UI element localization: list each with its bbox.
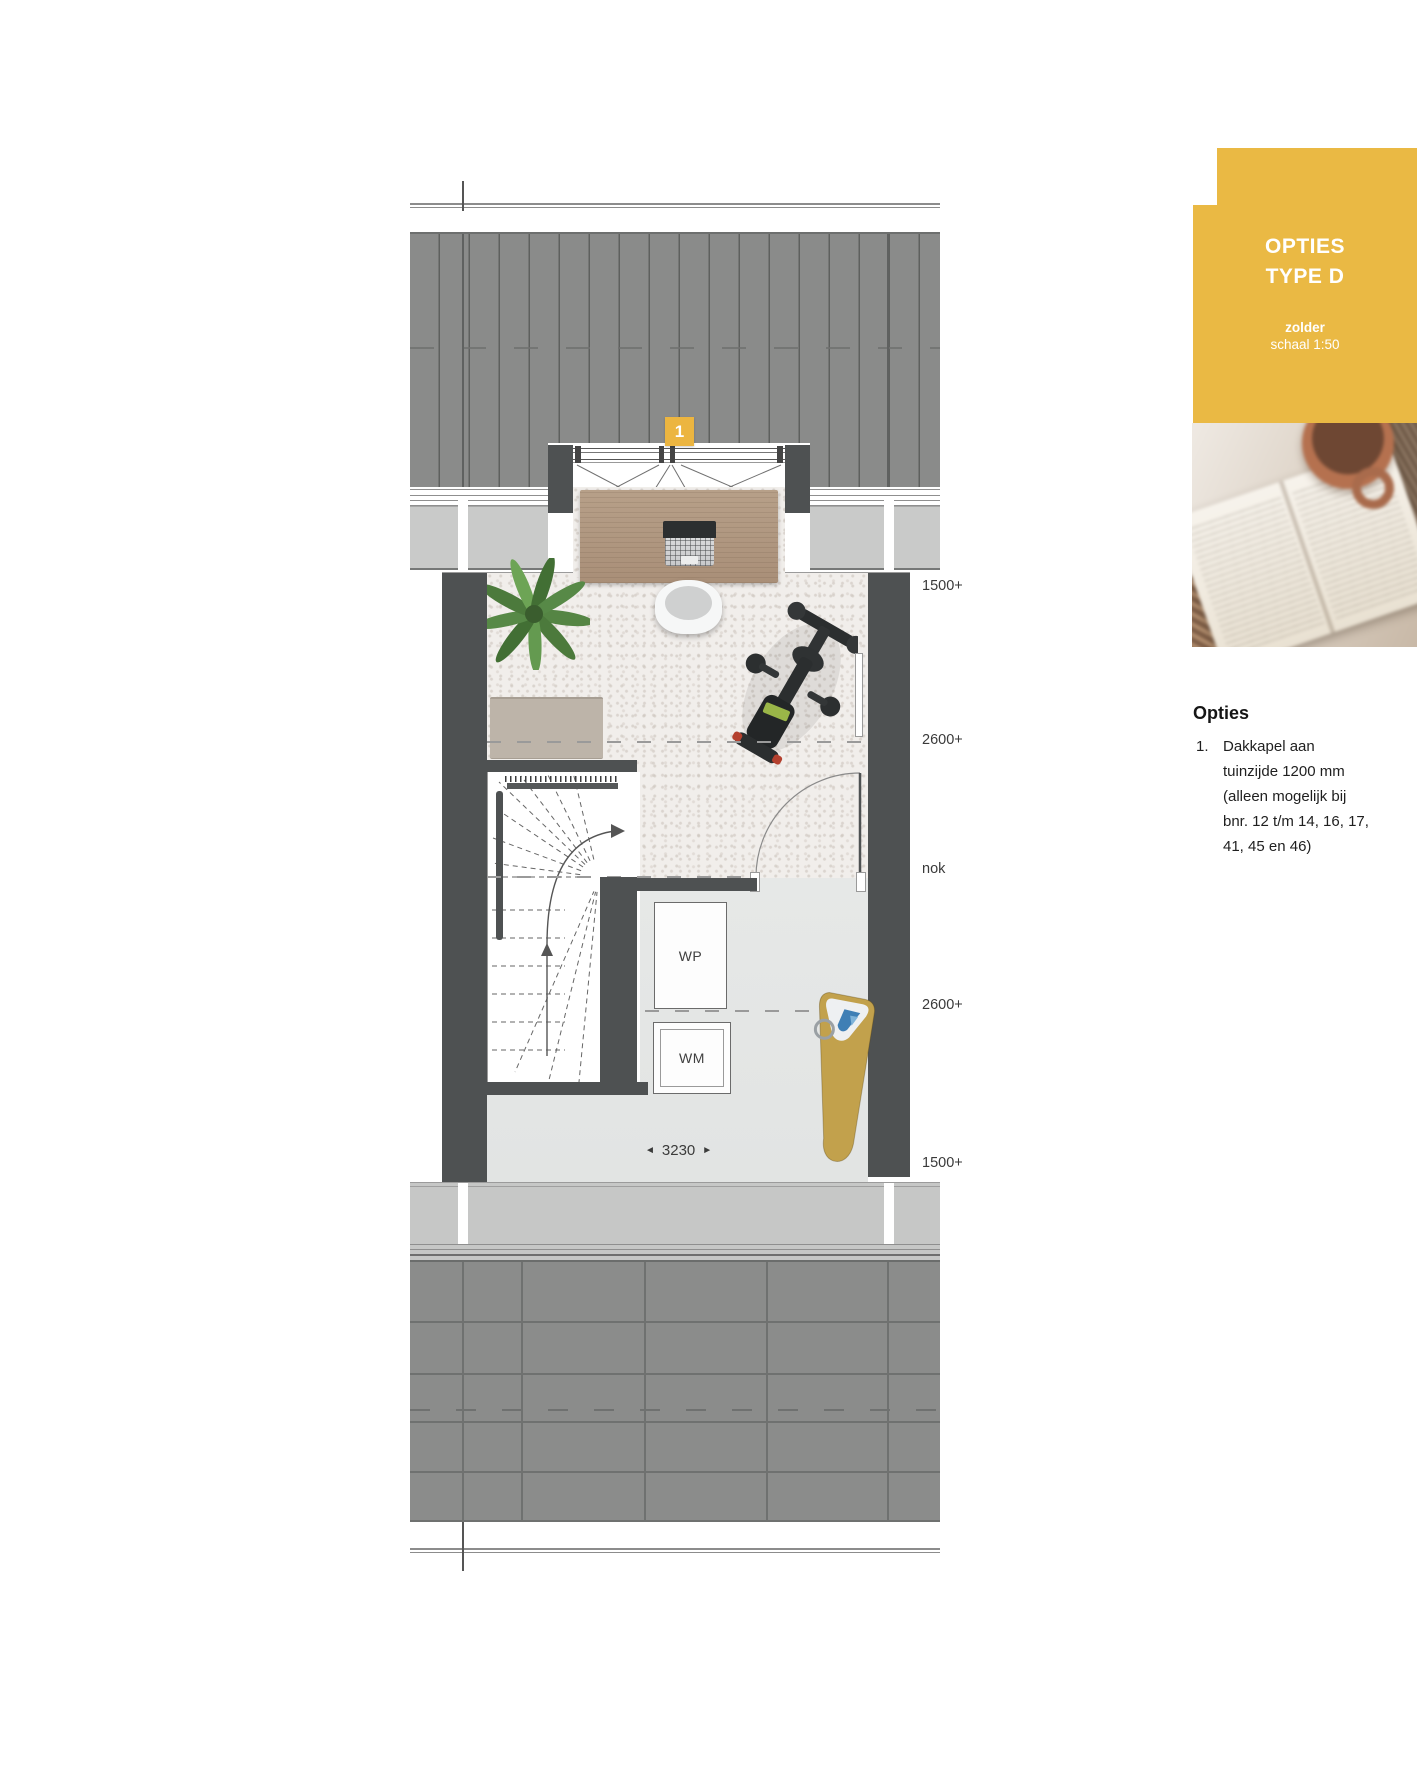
option-item-text: Dakkapel aan tuinzijde 1200 mm (alleen m… <box>1223 734 1369 859</box>
card-title-line1: OPTIES <box>1193 232 1417 262</box>
height-marker-nok: nok <box>922 861 945 877</box>
ridge-wall-segment <box>637 878 757 891</box>
width-dimension-value: 3230 <box>662 1142 695 1159</box>
eave-right <box>810 487 940 506</box>
washing-machine-unit: WM <box>653 1022 731 1094</box>
storage-mat <box>490 697 603 759</box>
option-1-badge: 1 <box>665 417 694 446</box>
stair-landing-hatch <box>505 776 620 782</box>
door-jamb-right <box>856 872 866 892</box>
card-scale-label: schaal 1:50 <box>1270 337 1339 352</box>
height-marker-2600-top: 2600+ <box>922 732 963 748</box>
ironing-board <box>795 985 880 1170</box>
stair-wall-top <box>485 760 637 772</box>
party-wall-tick-bottom <box>462 1522 464 1571</box>
stair-handrail <box>496 791 503 940</box>
stair-wall-bottom <box>485 1082 648 1095</box>
party-wall-tick-top <box>462 181 464 211</box>
photo-book-coffee <box>1192 423 1417 647</box>
wall-left <box>442 573 487 1182</box>
heat-pump-label: WP <box>679 948 703 964</box>
height-marker-1500-bottom: 1500+ <box>922 1155 963 1171</box>
brochure-page: 1 <box>0 0 1417 1772</box>
height-marker-1500-top: 1500+ <box>922 578 963 594</box>
washing-machine-label: WM <box>679 1050 705 1066</box>
party-wall-slit-left <box>458 496 468 570</box>
laptop-icon <box>663 521 716 538</box>
roof-dashed-line <box>410 347 940 349</box>
roof-height-line-2600-upper <box>487 741 868 743</box>
desk-chair <box>655 580 722 634</box>
card-title-line2: TYPE D <box>1193 262 1417 292</box>
top-reference-line <box>410 203 940 205</box>
height-marker-2600-bottom: 2600+ <box>922 997 963 1013</box>
eave-left <box>410 487 548 506</box>
dormer-wall-right <box>785 445 810 513</box>
title-card-tab <box>1217 148 1417 208</box>
stair-wall-right <box>600 877 637 1095</box>
options-heading: Opties <box>1193 703 1249 724</box>
roof-street-side <box>410 1260 940 1522</box>
card-floor-label: zolder <box>1285 320 1325 335</box>
party-wall-slit-right <box>884 496 894 570</box>
dimension-arrow-left-icon: ◄ <box>645 1145 655 1156</box>
eave-bottom <box>410 1183 940 1260</box>
option-item-number: 1. <box>1196 738 1209 755</box>
title-card: OPTIES TYPE D zolder schaal 1:50 <box>1193 205 1417 423</box>
bottom-reference-line <box>410 1548 940 1550</box>
plant <box>478 558 590 670</box>
knee-wall-panel <box>855 653 863 737</box>
dormer-wall-left <box>548 445 573 513</box>
roof-dashed-line-bottom <box>410 1409 940 1411</box>
heat-pump-unit: WP <box>654 902 727 1009</box>
exercise-bike <box>728 593 858 778</box>
dimension-arrow-right-icon: ► <box>702 1145 712 1156</box>
width-dimension: ◄ 3230 ► <box>645 1142 712 1159</box>
